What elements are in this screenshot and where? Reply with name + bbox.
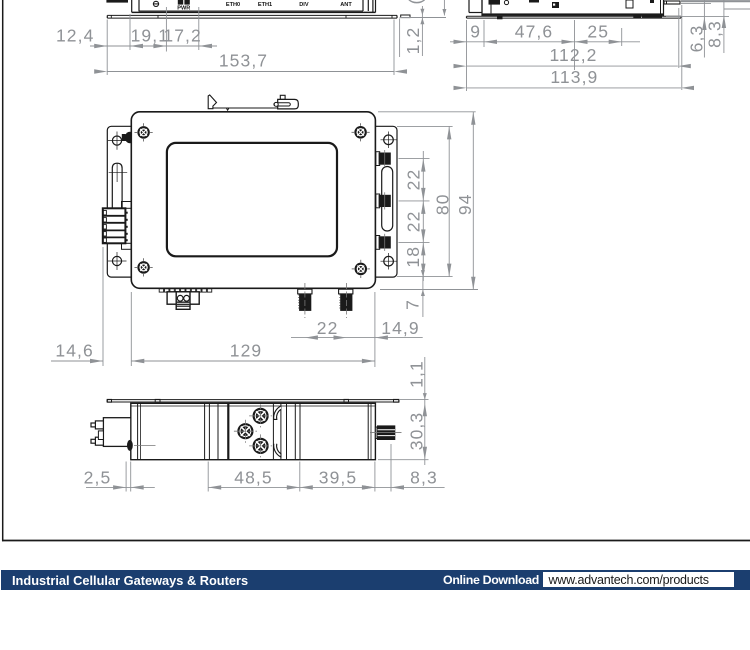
svg-text:ANT: ANT bbox=[340, 2, 352, 8]
svg-text:94: 94 bbox=[455, 193, 475, 215]
svg-text:25: 25 bbox=[587, 22, 609, 42]
svg-text:47,6: 47,6 bbox=[515, 22, 553, 42]
svg-text:22: 22 bbox=[404, 211, 424, 233]
svg-text:48,5: 48,5 bbox=[234, 468, 272, 488]
svg-text:ETH1: ETH1 bbox=[258, 2, 272, 8]
svg-text:18: 18 bbox=[403, 246, 423, 268]
svg-text:6,3: 6,3 bbox=[686, 25, 706, 53]
svg-text:14,6: 14,6 bbox=[55, 341, 93, 361]
svg-text:112,2: 112,2 bbox=[550, 45, 598, 65]
svg-text:1,1: 1,1 bbox=[407, 360, 427, 388]
svg-text:22: 22 bbox=[317, 318, 339, 338]
svg-text:7: 7 bbox=[403, 299, 423, 310]
svg-text:39,5: 39,5 bbox=[319, 468, 357, 488]
svg-text:(3: (3 bbox=[406, 0, 426, 5]
svg-text:153,7: 153,7 bbox=[219, 51, 268, 71]
svg-text:ETH0: ETH0 bbox=[226, 2, 240, 8]
svg-text:8,3: 8,3 bbox=[704, 20, 724, 48]
svg-text:22: 22 bbox=[404, 169, 424, 191]
svg-text:12,4: 12,4 bbox=[56, 26, 94, 46]
svg-text:14,9: 14,9 bbox=[381, 318, 419, 338]
svg-text:DIV: DIV bbox=[299, 2, 309, 8]
svg-text:PWR: PWR bbox=[177, 6, 190, 12]
svg-text:113,9: 113,9 bbox=[550, 67, 598, 87]
svg-text:30,3: 30,3 bbox=[406, 412, 426, 450]
svg-text:129: 129 bbox=[230, 341, 263, 361]
svg-text:8,3: 8,3 bbox=[410, 468, 438, 488]
svg-text:9: 9 bbox=[470, 22, 481, 42]
svg-text:1,2: 1,2 bbox=[403, 27, 423, 55]
svg-text:80: 80 bbox=[432, 193, 452, 215]
svg-text:2,5: 2,5 bbox=[84, 468, 112, 488]
svg-text:17,2: 17,2 bbox=[163, 26, 201, 46]
